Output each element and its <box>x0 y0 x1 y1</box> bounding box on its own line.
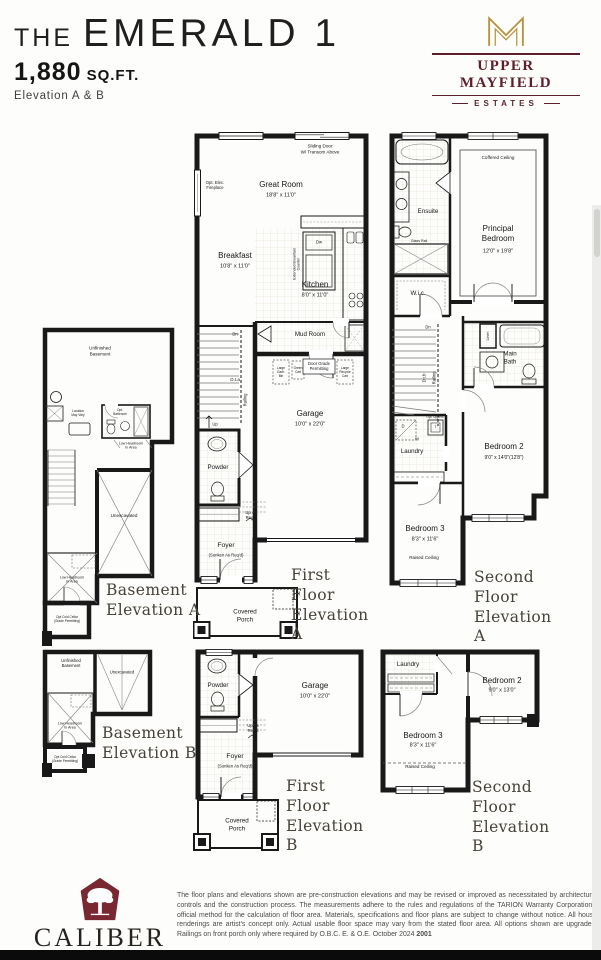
area-label-unexcavated: Unexcavated <box>111 513 138 519</box>
room-label-breakfast: Breakfast <box>218 251 252 261</box>
page-title: THE EMERALD 1 <box>14 12 340 56</box>
caption-first-floor-elevation-a: First Floor Elevation A <box>291 566 373 645</box>
room-label-foyer: Foyer <box>226 753 243 761</box>
caliber-house-tree-icon <box>77 876 123 922</box>
floorplan-sheet: THE EMERALD 1 1,880 SQ.FT. Elevation A &… <box>0 0 601 960</box>
caption-basement-elevation-a: Basement Elevation A <box>106 581 200 621</box>
room-label-great-room: Great Room <box>259 180 303 190</box>
room-label-principal-bedroom: Principal Bedroom <box>482 224 514 244</box>
note-recycle-cart: Large Recycle Cart <box>339 366 350 378</box>
scrollbar-thumb[interactable] <box>594 209 600 257</box>
note-door-grade: Door Grade Permitting <box>308 361 330 372</box>
stair-label-railing: Railing <box>431 372 436 385</box>
upper-mayfield-logo: UPPER MAYFIELD ESTATES <box>430 10 582 108</box>
room-label-covered-porch: Covered Porch <box>225 817 248 833</box>
note-low-headroom-1: Low Headroom In Area <box>119 442 143 451</box>
note-raised-ceiling: Raised Ceiling <box>409 555 439 561</box>
note-sliding-door: Sliding Door W/ Transom Above <box>301 143 340 154</box>
stair-label-dtb: D.t.b <box>421 374 426 383</box>
note-up-as-reqd: Up As Req'd <box>245 510 256 521</box>
note-green-cart: Green Cart <box>294 366 303 374</box>
caption-second-floor-elevation-b: Second Floor Elevation B <box>472 778 555 857</box>
room-dim-bedroom-3: 8'3" x 11'6" <box>412 537 439 544</box>
note-location-may-vary: Location May Vary <box>71 409 84 417</box>
room-label-unfinished-basement: Unfinished Basement <box>89 345 111 356</box>
room-label-laundry: Laundry <box>401 448 423 456</box>
room-label-bedroom-2: Bedroom 2 <box>484 442 523 452</box>
room-label-foyer: Foyer <box>217 542 234 550</box>
closet-label-linen: Linen <box>486 332 490 341</box>
note-opt-fireplace: Opt. Elec. Fireplace <box>206 180 224 191</box>
sfb-walls <box>383 652 539 794</box>
sqft-unit: SQ.FT. <box>87 67 140 84</box>
plan-code: 2001 <box>416 931 431 938</box>
area-label-unexcavated: Unexcavated <box>110 669 134 674</box>
sqft-line: 1,880 SQ.FT. <box>14 58 340 87</box>
sfa-walls <box>392 133 546 587</box>
plan-second-floor-b: Laundry Bedroom 2 9'0" x 13'0" Bedroom 3… <box>380 648 555 823</box>
ffa-walls <box>194 133 367 639</box>
room-dim-kitchen: 8'0" x 11'0" <box>302 293 329 300</box>
room-label-covered-porch: Covered Porch <box>233 608 256 624</box>
room-label-mud-room: Mud Room <box>295 331 325 339</box>
note-low-headroom-2: Low Headroom In Area <box>60 576 84 585</box>
room-label-bedroom-3: Bedroom 3 <box>405 524 444 534</box>
stair-label-railing: Railing <box>242 394 247 407</box>
plan-first-floor-a: Sliding Door W/ Transom Above Opt. Elec.… <box>193 128 373 643</box>
plan-basement-b: Unfinished Basement Unexcavated Low Head… <box>42 648 202 783</box>
title-model-name: EMERALD 1 <box>83 12 340 56</box>
plan-second-floor-a: Ensuite Glass Rail Coffered Ceiling Prin… <box>388 128 553 608</box>
stair-label-ota: O.t.a <box>230 377 240 383</box>
room-dim-bedroom-2: 9'0" x 14'0"(12'8") <box>484 455 523 461</box>
room-label-garage: Garage <box>297 409 324 419</box>
room-label-kitchen: Kitchen <box>302 280 329 290</box>
room-label-bedroom-2: Bedroom 2 <box>482 676 521 686</box>
sqft-value: 1,880 <box>14 58 82 87</box>
disclaimer-text: The floor plans and elevations shown are… <box>177 891 597 940</box>
note-raised-ceiling: Raised Ceiling <box>405 764 435 770</box>
title-the: THE <box>14 24 73 53</box>
elevation-subtitle: Elevation A & B <box>14 90 340 102</box>
crown-monogram-icon <box>483 10 529 48</box>
room-dim-garage: 10'0" x 22'0" <box>300 694 330 701</box>
room-sub-foyer: (Sunken As Req'd) <box>218 763 253 768</box>
stair-label-dn: Dn <box>232 331 237 336</box>
room-label-wic: W.i.c. <box>410 290 425 298</box>
room-label-bedroom-3: Bedroom 3 <box>403 731 442 741</box>
plan-first-floor-b: Powder Garage 10'0" x 22'0" Up As Req'd … <box>193 648 368 863</box>
scrollbar-track[interactable] <box>592 205 601 950</box>
room-dim-bedroom-3: 8'3" x 11'6" <box>410 743 437 750</box>
caliber-homes-logo: CALIBER HOMES <box>24 876 176 960</box>
room-label-garage: Garage <box>302 681 329 691</box>
note-opt-uppers: Opt. Uppers <box>426 415 443 419</box>
fixture-label-tub: T <box>434 425 436 429</box>
note-coffered-ceiling: Coffered Ceiling <box>482 155 515 161</box>
room-dim-great-room: 18'8" x 11'0" <box>266 193 296 200</box>
room-label-opt-bathroom: Opt. Bathroom <box>113 408 127 416</box>
builder-name: CALIBER <box>24 923 176 953</box>
room-label-cold-cellar: Opt Cold Cellar (Grade Permitting) <box>52 755 78 763</box>
room-label-unfinished-basement: Unfinished Basement <box>61 658 81 669</box>
room-label-ensuite: Ensuite <box>418 208 439 216</box>
note-garbage-bin: Large Garb. Bin <box>277 366 285 378</box>
brand-rule-top <box>432 53 580 55</box>
disclaimer-body: The floor plans and elevations shown are… <box>177 892 597 938</box>
fixture-label-dryer: D <box>401 423 404 428</box>
fixture-label-washer: W <box>415 436 419 441</box>
room-dim-bedroom-2: 9'0" x 13'0" <box>488 688 515 695</box>
fixture-label-dishwasher: Dw <box>316 239 322 244</box>
note-up-as-reqd: Up As Req'd <box>247 723 258 734</box>
brand-name: UPPER MAYFIELD <box>430 58 582 92</box>
room-dim-breakfast: 10'8" x 11'0" <box>220 264 250 271</box>
title-block: THE EMERALD 1 1,880 SQ.FT. Elevation A &… <box>14 12 340 102</box>
brand-rule-bottom <box>432 95 580 96</box>
caption-first-floor-elevation-b: First Floor Elevation B <box>286 777 368 856</box>
brand-sub-row: ESTATES <box>430 99 582 108</box>
plan-basement-a: Unfinished Basement Location May Vary Op… <box>42 326 217 646</box>
brand-sub: ESTATES <box>474 99 538 108</box>
window-edge-bar <box>0 950 601 960</box>
room-label-laundry: Laundry <box>397 661 419 669</box>
caption-second-floor-elevation-a: Second Floor Elevation A <box>474 568 553 647</box>
room-dim-principal-bedroom: 12'0" x 19'8" <box>483 249 513 256</box>
caption-basement-elevation-b: Basement Elevation B <box>102 724 197 764</box>
note-extended-counter: Extended Breakfast Counter <box>293 248 302 279</box>
room-dim-garage: 10'0" x 22'0" <box>295 422 325 429</box>
room-label-cold-cellar: Opt Cold Cellar (Grade Permitting) <box>54 615 80 623</box>
stair-label-dn: Dn <box>425 324 430 329</box>
room-label-powder: Powder <box>208 682 229 690</box>
room-label-main-bath: Main Bath <box>503 350 516 366</box>
note-low-headroom: Low Headroom In Area <box>58 722 82 731</box>
note-glass-rail: Glass Rail <box>411 239 427 243</box>
brand-dash-left <box>452 103 468 104</box>
brand-dash-right <box>544 103 560 104</box>
